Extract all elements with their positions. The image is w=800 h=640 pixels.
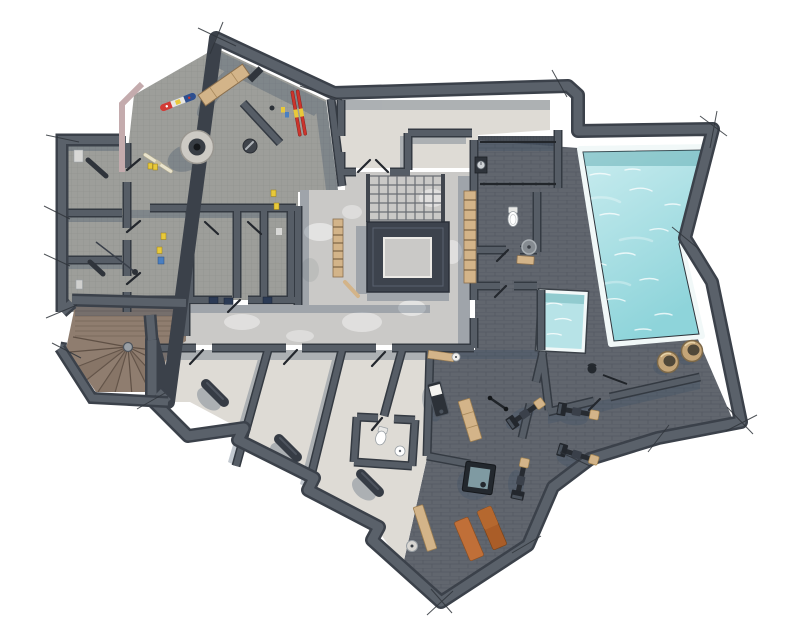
scale-disc-icon — [407, 541, 418, 552]
ice-bath-icon — [462, 461, 496, 495]
clock-disc-icon — [452, 353, 460, 361]
spa-appliance-icon — [475, 157, 487, 173]
wc-sink-icon — [395, 446, 405, 456]
wall-post — [270, 106, 275, 111]
floor-plan-svg — [0, 0, 800, 640]
round-stool-icon — [243, 139, 257, 153]
spa-side-table-icon — [522, 240, 536, 254]
spiral-stair-pole — [124, 343, 133, 352]
spa-bench-icon — [517, 255, 535, 264]
stair-void — [367, 222, 449, 292]
wicker-stool-icon — [682, 341, 703, 362]
floor-plan-canvas — [0, 0, 800, 640]
boot-dryer-icon — [181, 131, 214, 164]
spa-toilet-icon — [508, 207, 518, 227]
wicker-stool-icon — [658, 352, 679, 373]
